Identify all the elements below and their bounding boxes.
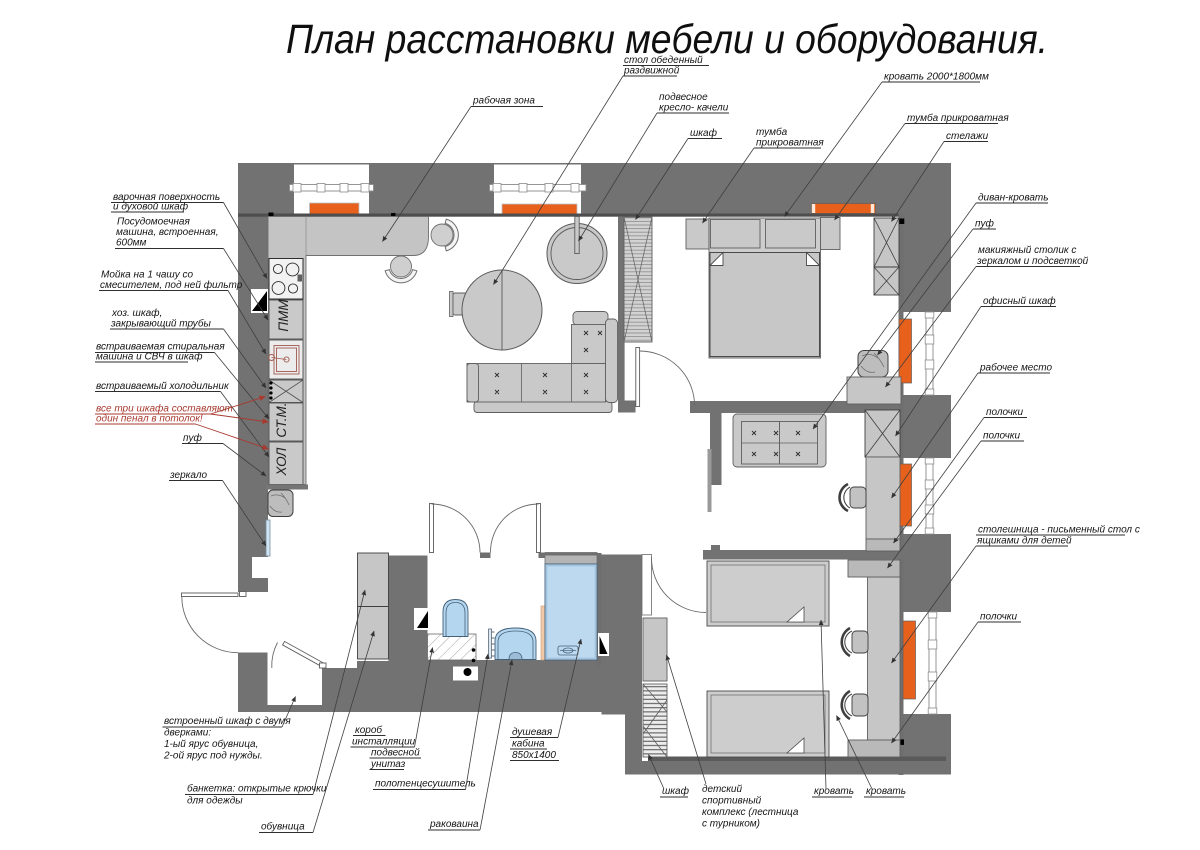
svg-text:смесителем, под ней фильтр: смесителем, под ней фильтр <box>100 279 243 291</box>
svg-text:детский: детский <box>702 784 742 795</box>
svg-text:полочки: полочки <box>986 407 1023 418</box>
svg-text:ящиками для детей: ящиками для детей <box>976 536 1072 547</box>
svg-text:стелажи: стелажи <box>946 131 989 142</box>
svg-text:унитаз: унитаз <box>370 759 406 770</box>
svg-text:кресло- качели: кресло- качели <box>659 103 729 114</box>
svg-text:раковаина: раковаина <box>429 819 479 830</box>
svg-text:спортивный: спортивный <box>702 796 762 807</box>
svg-text:1-ый ярус обувница,: 1-ый ярус обувница, <box>164 738 258 750</box>
svg-text:полочки: полочки <box>980 612 1017 623</box>
svg-text:с турником): с турником) <box>702 819 760 830</box>
svg-text:зеркалом и подсветкой: зеркалом и подсветкой <box>976 256 1089 267</box>
svg-text:стол обеденный: стол обеденный <box>624 54 703 66</box>
svg-text:душевая: душевая <box>512 727 553 738</box>
svg-text:кровать: кровать <box>866 786 906 797</box>
svg-text:банкетка: открытые крючки: банкетка: открытые крючки <box>187 783 327 795</box>
svg-text:шкаф: шкаф <box>690 127 718 139</box>
svg-text:зеркало: зеркало <box>169 470 207 481</box>
svg-text:пуф: пуф <box>975 218 995 230</box>
svg-text:полочки: полочки <box>983 431 1020 442</box>
svg-text:столешница - письменный стол с: столешница - письменный стол с <box>978 525 1140 536</box>
svg-text:850х1400: 850х1400 <box>512 750 556 761</box>
svg-text:короб: короб <box>355 724 382 736</box>
svg-text:встраиваемый холодильник: встраиваемый холодильник <box>96 381 230 392</box>
svg-text:один пенал в потолок!: один пенал в потолок! <box>96 414 203 425</box>
svg-text:комплекс (лестница: комплекс (лестница <box>702 807 799 818</box>
svg-text:2-ой ярус под нужды.: 2-ой ярус под нужды. <box>163 751 263 762</box>
svg-text:машина, встроенная,: машина, встроенная, <box>116 227 219 238</box>
svg-text:прикроватная: прикроватная <box>756 138 824 149</box>
svg-text:рабочая зона: рабочая зона <box>472 95 535 107</box>
svg-text:встроенный шкаф с двумя: встроенный шкаф с двумя <box>164 715 291 727</box>
svg-text:офисный шкаф: офисный шкаф <box>983 295 1056 307</box>
svg-text:600мм: 600мм <box>116 238 147 249</box>
svg-text:обувница: обувница <box>261 821 305 833</box>
svg-text:машина и СВЧ в шкаф: машина и СВЧ в шкаф <box>96 351 203 363</box>
svg-text:ХОЛ: ХОЛ <box>274 447 289 477</box>
svg-text:ПММ: ПММ <box>276 299 291 332</box>
svg-text:диван-кровать: диван-кровать <box>978 193 1048 204</box>
svg-text:тумба: тумба <box>756 126 788 138</box>
svg-text:подвесной: подвесной <box>371 748 420 759</box>
svg-text:раздвижной: раздвижной <box>623 66 680 77</box>
svg-text:пуф: пуф <box>183 432 203 444</box>
svg-text:кабина: кабина <box>512 738 545 750</box>
svg-text:кровать: кровать <box>814 786 854 797</box>
svg-text:Посудомоечная: Посудомоечная <box>117 217 190 228</box>
svg-text:кровать 2000*1800мм: кровать 2000*1800мм <box>884 72 989 83</box>
svg-text:и духовой шкаф: и духовой шкаф <box>113 201 189 213</box>
svg-text:закрывающий трубы: закрывающий трубы <box>110 318 212 330</box>
svg-text:подвесное: подвесное <box>659 92 708 103</box>
svg-text:СТ.М.: СТ.М. <box>274 402 289 437</box>
svg-text:тумба прикроватная: тумба прикроватная <box>907 112 1009 124</box>
svg-text:полотенцесушитель: полотенцесушитель <box>375 779 476 790</box>
svg-text:макияжный столик с: макияжный столик с <box>978 245 1076 256</box>
svg-text:рабочее место: рабочее место <box>979 362 1052 374</box>
svg-text:для одежды: для одежды <box>187 796 243 807</box>
svg-text:инсталляции: инсталляции <box>352 737 416 748</box>
svg-text:хоз. шкаф,: хоз. шкаф, <box>111 307 162 319</box>
svg-text:Мойка на 1 чашу со: Мойка на 1 чашу со <box>101 270 194 281</box>
svg-text:дверками:: дверками: <box>164 728 211 739</box>
svg-text:шкаф: шкаф <box>662 785 690 797</box>
